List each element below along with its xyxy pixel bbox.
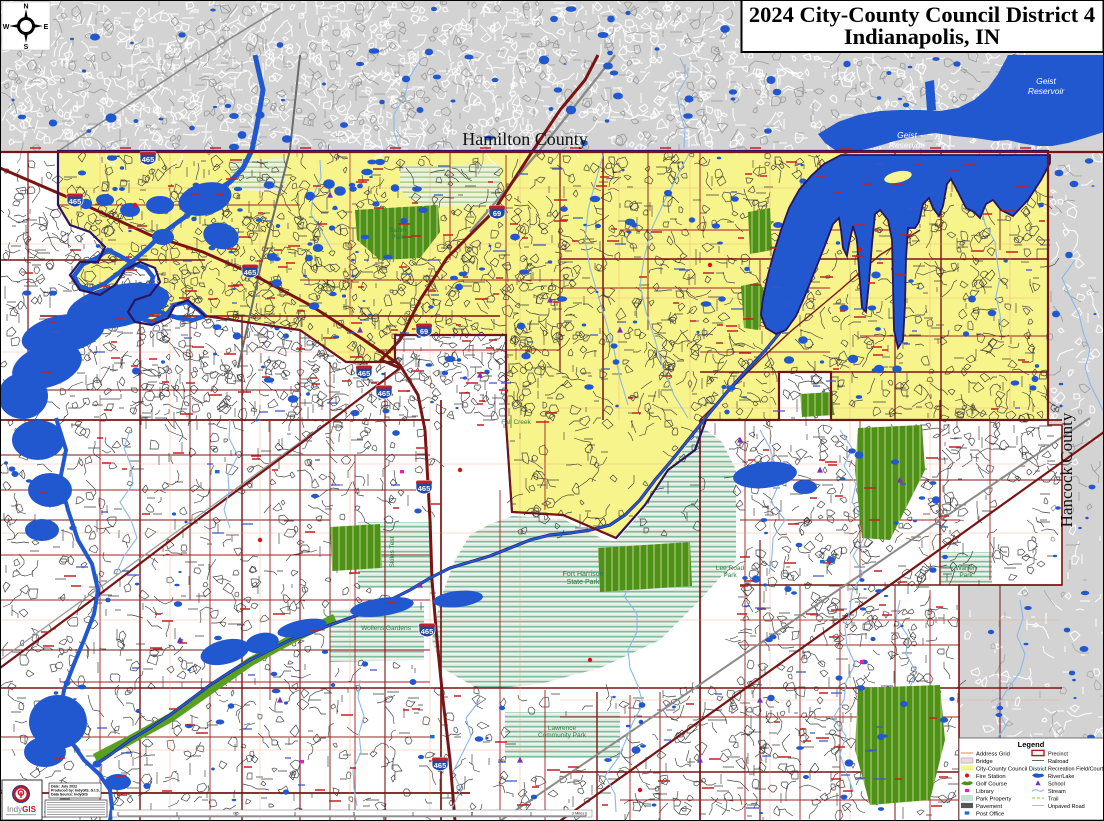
svg-text:Library: Library	[976, 789, 994, 795]
svg-text:Lee Road: Lee Road	[716, 565, 745, 572]
svg-text:IndyGIS: IndyGIS	[7, 805, 37, 814]
svg-text:3 Miles: 3 Miles	[572, 811, 585, 816]
svg-text:465: 465	[378, 389, 391, 398]
svg-text:Hancock County: Hancock County	[1057, 412, 1076, 527]
svg-text:Fall Creek: Fall Creek	[501, 419, 531, 426]
svg-text:City-County Council District: City-County Council District	[976, 766, 1047, 772]
svg-text:S: S	[24, 44, 29, 51]
svg-text:Park: Park	[959, 572, 973, 579]
svg-text:Skiles Test: Skiles Test	[389, 536, 396, 567]
svg-text:Data Source: IndyGIS: Data Source: IndyGIS	[51, 793, 88, 797]
svg-text:Park Property: Park Property	[976, 796, 1012, 802]
svg-text:Reservoir: Reservoir	[1028, 86, 1066, 96]
svg-text:State Park: State Park	[567, 579, 600, 586]
svg-text:69: 69	[420, 327, 428, 336]
svg-text:465: 465	[434, 761, 447, 770]
svg-text:Railroad: Railroad	[1048, 759, 1068, 765]
svg-text:Geist: Geist	[897, 130, 917, 140]
svg-text:Unpaved Road: Unpaved Road	[1048, 804, 1085, 810]
svg-text:Stream: Stream	[1048, 789, 1066, 795]
svg-text:Fort Harrison: Fort Harrison	[563, 571, 604, 578]
svg-text:Fire Station: Fire Station	[976, 774, 1006, 780]
svg-text:Recreation Field/Court: Recreation Field/Court	[1048, 766, 1103, 772]
svg-text:Reservoir: Reservoir	[889, 140, 927, 150]
svg-text:W: W	[3, 24, 10, 31]
svg-text:69: 69	[493, 209, 501, 218]
svg-text:Bridge: Bridge	[976, 759, 993, 765]
svg-text:Post Office: Post Office	[976, 811, 1004, 817]
svg-text:Pavement: Pavement	[976, 804, 1002, 810]
svg-text:Trail: Trail	[1048, 796, 1059, 802]
svg-text:E: E	[44, 24, 49, 31]
svg-text:Warren: Warren	[955, 565, 976, 572]
svg-text:Community Park: Community Park	[538, 732, 587, 739]
svg-text:Hamilton County: Hamilton County	[462, 129, 588, 149]
svg-text:465: 465	[244, 268, 257, 277]
svg-text:Park: Park	[723, 572, 737, 579]
svg-text:Precinct: Precinct	[1048, 751, 1068, 757]
svg-text:River/Lake: River/Lake	[1048, 774, 1074, 780]
svg-text:Lawrence: Lawrence	[548, 725, 577, 732]
svg-text:Golf Course: Golf Course	[976, 781, 1007, 787]
svg-text:Sahm: Sahm	[390, 227, 407, 234]
svg-text:465: 465	[142, 155, 155, 164]
svg-text:465: 465	[421, 627, 434, 636]
svg-text:465: 465	[69, 197, 82, 206]
svg-text:Address Grid: Address Grid	[976, 751, 1010, 757]
svg-text:Wollens Gardens: Wollens Gardens	[361, 625, 411, 632]
svg-text:465: 465	[418, 484, 431, 493]
svg-text:0.5: 0.5	[233, 811, 239, 816]
svg-text:465: 465	[358, 369, 371, 378]
svg-text:Legend: Legend	[1018, 740, 1045, 749]
svg-text:Geist: Geist	[1036, 76, 1056, 86]
svg-text:Park: Park	[391, 234, 405, 241]
svg-text:Indianapolis, IN: Indianapolis, IN	[844, 24, 1000, 49]
svg-text:School: School	[1048, 781, 1065, 787]
svg-text:N: N	[23, 4, 28, 11]
